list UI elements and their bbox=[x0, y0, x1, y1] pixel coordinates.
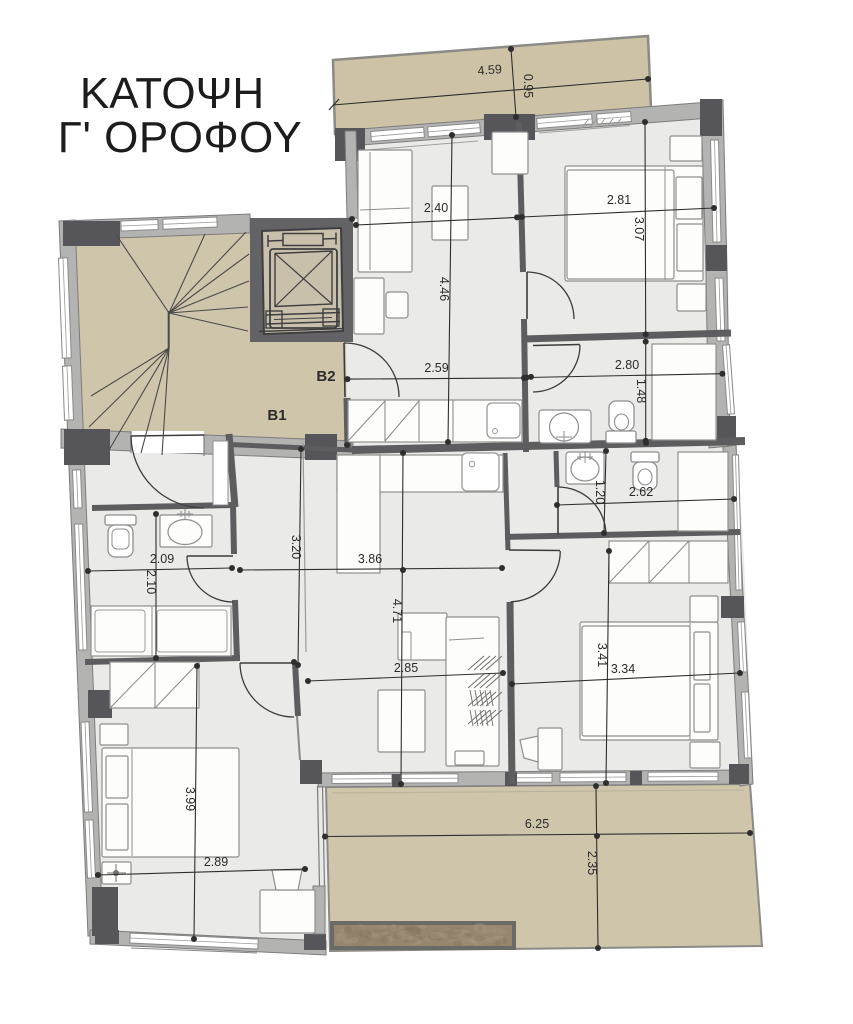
svg-text:1.48: 1.48 bbox=[634, 379, 648, 403]
svg-text:B2: B2 bbox=[316, 368, 335, 385]
svg-text:2.89: 2.89 bbox=[204, 855, 228, 869]
svg-text:0.95: 0.95 bbox=[521, 74, 535, 98]
svg-text:2.35: 2.35 bbox=[585, 851, 599, 875]
svg-text:4.59: 4.59 bbox=[477, 62, 502, 78]
svg-text:2.81: 2.81 bbox=[607, 193, 631, 207]
svg-text:2.40: 2.40 bbox=[424, 201, 448, 215]
svg-text:3.86: 3.86 bbox=[358, 552, 382, 566]
svg-text:6.25: 6.25 bbox=[525, 817, 549, 831]
svg-text:3.34: 3.34 bbox=[611, 662, 635, 676]
svg-text:2.62: 2.62 bbox=[629, 485, 653, 499]
svg-text:3.99: 3.99 bbox=[183, 787, 197, 811]
svg-text:2.85: 2.85 bbox=[394, 661, 418, 675]
svg-text:4.71: 4.71 bbox=[390, 599, 404, 623]
svg-text:2.59: 2.59 bbox=[424, 361, 448, 375]
svg-text:B1: B1 bbox=[267, 407, 286, 424]
svg-text:1.20: 1.20 bbox=[593, 480, 607, 504]
svg-text:ΚΑΤΟΨΗ: ΚΑΤΟΨΗ bbox=[80, 69, 264, 118]
svg-text:2.09: 2.09 bbox=[150, 552, 174, 566]
svg-text:3.07: 3.07 bbox=[632, 217, 646, 241]
svg-text:2.10: 2.10 bbox=[144, 570, 158, 594]
svg-text:3.41: 3.41 bbox=[595, 643, 609, 667]
svg-text:Γ' ΟΡΟΦΟΥ: Γ' ΟΡΟΦΟΥ bbox=[58, 113, 302, 162]
svg-text:3.20: 3.20 bbox=[289, 535, 303, 559]
svg-text:4.46: 4.46 bbox=[437, 277, 451, 301]
svg-text:2.80: 2.80 bbox=[615, 358, 639, 372]
